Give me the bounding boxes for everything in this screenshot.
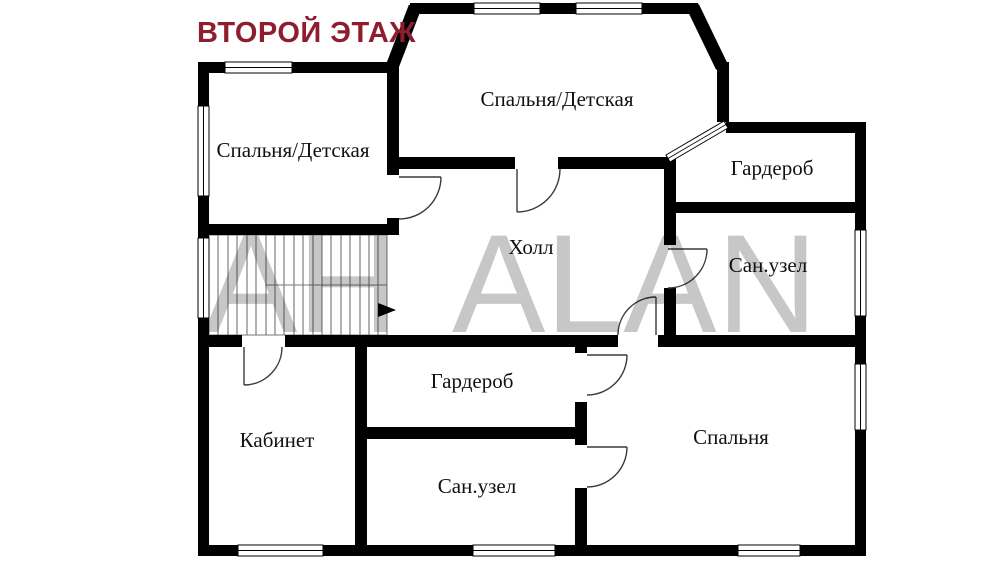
window-bedroom-top-1 [474,3,540,14]
room-label-bedroom-top: Спальня/Детская [480,87,633,111]
window-bedroom-left-top [225,62,292,73]
watermark: АН ALAN [204,205,818,362]
window-bedroom-top-2 [576,3,642,14]
window-bedroom-left-side [198,106,209,196]
watermark-part1: АН [204,205,398,362]
window-bedroom-main-right [855,364,866,430]
room-label-wardrobe-bottom: Гардероб [431,369,514,393]
room-label-office: Кабинет [240,428,315,452]
watermark-part2: ALAN [452,205,818,362]
floor-plan-drawing: Спальня/Детская Спальня/Детская Гардероб… [0,0,1000,563]
window-bedroom-main-bottom [738,545,800,556]
room-label-bedroom-left: Спальня/Детская [216,138,369,162]
room-label-bedroom-main: Спальня [693,425,769,449]
floor-plan-page: Спальня/Детская Спальня/Детская Гардероб… [0,0,1000,563]
window-bathroom-top-right [855,230,866,316]
room-label-bathroom-bottom: Сан.узел [438,474,516,498]
page-title: ВТОРОЙ ЭТАЖ [197,15,416,49]
window-bathroom-bottom [473,545,555,556]
room-label-wardrobe-top-right: Гардероб [731,156,814,180]
window-office-bottom [238,545,323,556]
